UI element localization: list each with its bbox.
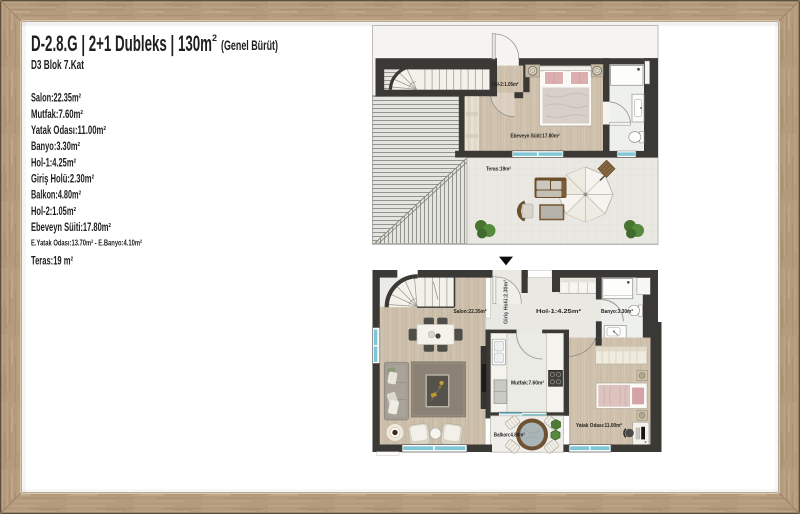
svg-text:Ebeveyn Süiti:17.80m²: Ebeveyn Süiti:17.80m² bbox=[31, 222, 111, 234]
svg-text:Giriş Holü:2.30m²: Giriş Holü:2.30m² bbox=[503, 280, 510, 324]
svg-text:D3 Blok 7.Kat: D3 Blok 7.Kat bbox=[31, 58, 85, 72]
svg-text:2: 2 bbox=[212, 33, 217, 43]
svg-text:D-2.8.G | 2+1 Dubleks | 130m: D-2.8.G | 2+1 Dubleks | 130m bbox=[31, 31, 212, 56]
svg-text:Ebeveyn Süiti:17.80m²: Ebeveyn Süiti:17.80m² bbox=[511, 132, 560, 139]
svg-text:Yatak Odası:11.00m²: Yatak Odası:11.00m² bbox=[576, 422, 622, 429]
svg-text:Hol-1:4.25m²: Hol-1:4.25m² bbox=[536, 308, 581, 315]
svg-text:Giriş Holü:2.30m²: Giriş Holü:2.30m² bbox=[31, 174, 94, 186]
svg-text:Mutfak:7.60m²: Mutfak:7.60m² bbox=[511, 379, 544, 386]
svg-text:Mutfak:7.60m²: Mutfak:7.60m² bbox=[31, 109, 83, 121]
svg-text:Salon:22.35m²: Salon:22.35m² bbox=[454, 308, 487, 315]
svg-text:Balkon:4.80m²: Balkon:4.80m² bbox=[31, 190, 81, 202]
svg-text:Teras:19 m²: Teras:19 m² bbox=[31, 256, 73, 268]
svg-text:Banyo:3.30m²: Banyo:3.30m² bbox=[601, 308, 633, 315]
svg-text:Banyo:3.30m²: Banyo:3.30m² bbox=[31, 141, 80, 153]
svg-text:Salon:22.35m²: Salon:22.35m² bbox=[31, 93, 81, 105]
svg-text:Yatak Odası:11.00m²: Yatak Odası:11.00m² bbox=[31, 125, 106, 137]
svg-text:Hol-2:1.05m²: Hol-2:1.05m² bbox=[492, 81, 519, 88]
svg-text:Hol-2:1.05m²: Hol-2:1.05m² bbox=[31, 206, 76, 218]
svg-text:(Genel Bürüt): (Genel Bürüt) bbox=[221, 37, 278, 53]
svg-text:Hol-1:4.25m²: Hol-1:4.25m² bbox=[31, 157, 76, 169]
svg-text:Teras:19m²: Teras:19m² bbox=[486, 166, 511, 173]
svg-text:Balkon:4.80m²: Balkon:4.80m² bbox=[494, 431, 525, 438]
svg-text:E.Yatak Odası:13.70m² - E.Bany: E.Yatak Odası:13.70m² - E.Banyo:4.10m² bbox=[31, 238, 142, 247]
